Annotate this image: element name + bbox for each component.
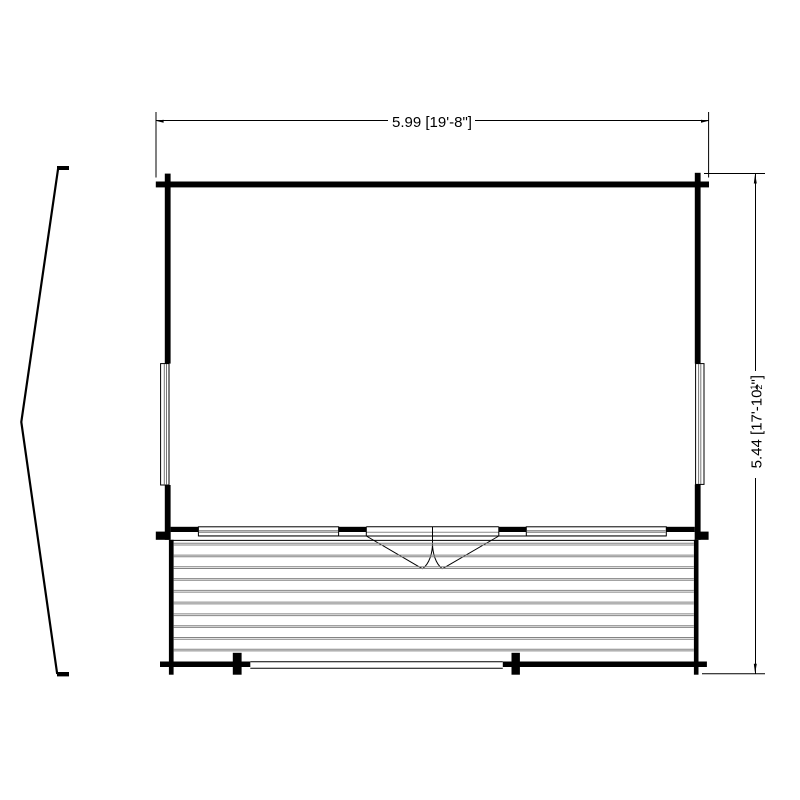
- svg-text:5.99 [19'-8"]: 5.99 [19'-8"]: [392, 114, 472, 131]
